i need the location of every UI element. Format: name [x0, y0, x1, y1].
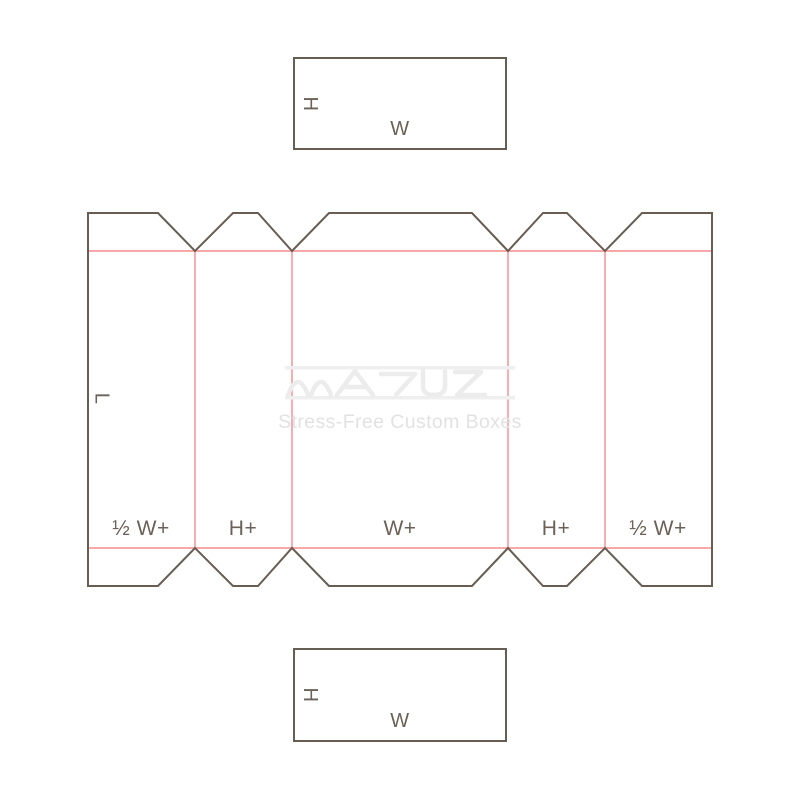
- bottom-panel-height-label: H: [298, 688, 321, 703]
- panel-label-h-left: H+: [229, 517, 257, 541]
- bottom-spec-panel: H W: [293, 648, 507, 742]
- dieline-page: H W L ½ W+ H+ W+ H+ ½ W+: [0, 0, 800, 800]
- top-panel-height-label: H: [298, 96, 321, 111]
- logo-wave-letters: [288, 371, 485, 395]
- top-panel-width-label: W: [390, 118, 409, 141]
- panel-label-half-w-left: ½ W+: [112, 517, 169, 541]
- panel-label-half-w-right: ½ W+: [629, 517, 686, 541]
- watermark-tagline: Stress-Free Custom Boxes: [278, 411, 522, 434]
- dieline-length-label: L: [89, 393, 112, 405]
- bottom-panel-width-label: W: [390, 710, 409, 733]
- panel-label-w-center: W+: [383, 517, 416, 541]
- matus-logo-watermark: [285, 362, 515, 404]
- panel-label-h-right: H+: [542, 517, 570, 541]
- logo-top-liner-bar: [285, 366, 515, 370]
- top-spec-panel: H W: [293, 57, 507, 150]
